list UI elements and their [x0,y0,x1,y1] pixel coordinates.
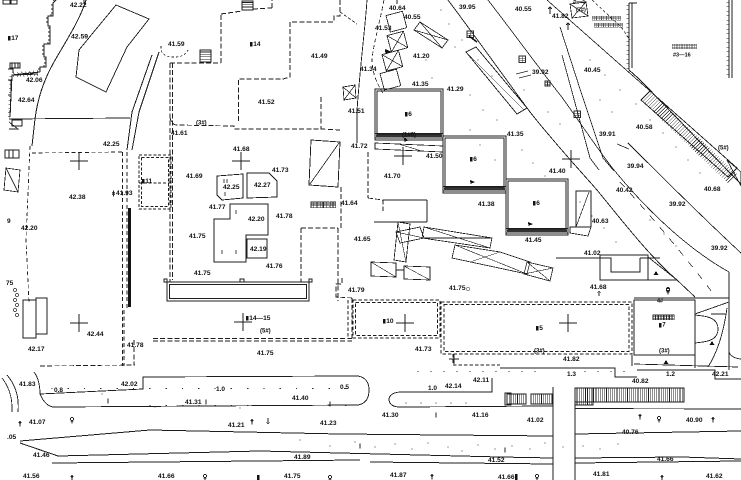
svg-text:11: 11 [145,178,152,185]
svg-text:40.55: 40.55 [515,6,532,13]
svg-text:41.75: 41.75 [194,270,211,277]
svg-text:41.56: 41.56 [23,473,40,480]
svg-text:41.07: 41.07 [29,419,46,426]
svg-text:41.23: 41.23 [320,420,337,427]
svg-text:1.0: 1.0 [428,385,437,392]
svg-text:41.59: 41.59 [168,41,185,48]
svg-text:40.76: 40.76 [622,429,639,436]
svg-text:6: 6 [473,156,477,163]
svg-text:41.61: 41.61 [171,130,188,137]
svg-text:0.5: 0.5 [340,384,349,391]
svg-text:41.02: 41.02 [527,417,544,424]
svg-text:42.21: 42.21 [712,371,729,378]
svg-text:6: 6 [408,111,412,118]
svg-text:41.78: 41.78 [276,213,293,220]
svg-text:41.65: 41.65 [354,236,371,243]
svg-text:17: 17 [11,35,19,42]
svg-text:42.25: 42.25 [223,184,240,191]
svg-text:41.49: 41.49 [311,53,328,60]
svg-text:42.44: 42.44 [87,331,104,338]
svg-text:42.19: 42.19 [250,246,267,253]
svg-text:41.76: 41.76 [266,263,283,270]
svg-text:41.69: 41.69 [186,173,203,180]
svg-text:4#: 4# [657,298,663,304]
svg-text:(3#): (3#) [534,349,545,355]
svg-text:41.46: 41.46 [33,452,50,459]
svg-text:42.20: 42.20 [248,216,265,223]
svg-text:41.75: 41.75 [284,473,301,480]
svg-text:42.20: 42.20 [21,225,38,232]
svg-text:41.34: 41.34 [360,66,377,73]
svg-text:41.75: 41.75 [449,285,466,292]
svg-text:.05: .05 [7,434,16,441]
svg-text:40.68: 40.68 [704,186,721,193]
svg-text:40.55: 40.55 [404,14,421,21]
svg-text:40.58: 40.58 [636,124,653,131]
svg-text:41.93: 41.93 [116,190,133,197]
svg-text:41.16: 41.16 [472,412,489,419]
svg-text:5: 5 [539,325,543,332]
svg-text:41.75: 41.75 [257,350,274,357]
svg-text:41.68: 41.68 [590,284,607,291]
svg-text:14: 14 [253,41,261,48]
svg-text:41.75: 41.75 [189,233,206,240]
svg-text:42.14: 42.14 [445,383,462,390]
svg-text:41.73: 41.73 [415,346,432,353]
svg-text:(5#): (5#) [718,146,729,152]
svg-text:41.77: 41.77 [209,204,226,211]
svg-text:39.91: 39.91 [599,131,616,138]
svg-text:41.52: 41.52 [258,99,275,106]
svg-text:42.02: 42.02 [121,381,138,388]
svg-text:6: 6 [536,200,540,207]
svg-text:42.38: 42.38 [69,194,86,201]
svg-text:41.38: 41.38 [478,201,495,208]
svg-text:41.82: 41.82 [552,13,569,20]
svg-text:41.70: 41.70 [384,173,401,180]
svg-text:41.02: 41.02 [584,250,601,257]
svg-text:42.06: 42.06 [26,77,43,84]
svg-text:10: 10 [386,318,394,325]
svg-text:41.79: 41.79 [348,287,365,294]
svg-text:41.35: 41.35 [507,131,524,138]
svg-text:40.82: 40.82 [632,378,649,385]
svg-text:#3—16: #3—16 [673,52,691,58]
svg-text:1.2: 1.2 [666,371,675,378]
svg-text:41.72: 41.72 [351,143,368,150]
svg-text:(1#6): (1#6) [402,133,416,139]
svg-text:41.66: 41.66 [498,474,515,480]
svg-text:14—15: 14—15 [249,315,271,322]
svg-text:41.29: 41.29 [447,86,464,93]
svg-text:41.45: 41.45 [525,237,542,244]
svg-text:41.83: 41.83 [19,381,36,388]
svg-text:41.62: 41.62 [706,473,723,480]
svg-text:(5#): (5#) [260,329,271,335]
svg-text:41.21: 41.21 [228,422,245,429]
svg-text:39.94: 39.94 [627,163,644,170]
svg-text:41.35: 41.35 [412,81,429,88]
svg-text:40.64: 40.64 [389,5,406,12]
svg-text:1.3: 1.3 [567,371,576,378]
svg-text:41.30: 41.30 [382,412,399,419]
svg-text:41.51: 41.51 [348,108,365,115]
svg-text:41.40: 41.40 [292,395,309,402]
svg-text:41.82: 41.82 [563,356,580,363]
svg-text:(3#): (3#) [196,121,207,127]
svg-text:40.90: 40.90 [686,417,703,424]
svg-text:9: 9 [7,218,11,225]
svg-text:42.64: 42.64 [18,97,35,104]
svg-text:41.81: 41.81 [593,471,610,478]
svg-text:39.92: 39.92 [669,201,686,208]
svg-text:40.63: 40.63 [592,218,609,225]
svg-text:42.59: 42.59 [71,33,88,40]
svg-text:(7#): (7#) [576,7,586,13]
svg-text:39.92: 39.92 [532,69,549,76]
svg-text:0.8: 0.8 [54,387,63,394]
svg-text:41.64: 41.64 [341,200,358,207]
svg-text:41.31: 41.31 [185,399,202,406]
svg-text:41.20: 41.20 [413,53,430,60]
svg-text:42.27: 42.27 [254,182,271,189]
svg-text:42.11: 42.11 [473,377,489,384]
svg-text:41.40: 41.40 [549,168,566,175]
svg-text:41.66: 41.66 [158,473,175,480]
svg-text:41.50: 41.50 [426,153,443,160]
svg-text:75: 75 [6,280,14,287]
svg-text:39.95: 39.95 [459,4,476,11]
svg-text:39.92: 39.92 [711,245,728,252]
svg-text:41.73: 41.73 [272,167,289,174]
svg-text:(3#): (3#) [659,349,670,355]
svg-text:40.45: 40.45 [584,67,601,74]
svg-text:#—5: #—5 [573,0,586,6]
svg-text:41.78: 41.78 [127,342,144,349]
svg-text:41.87: 41.87 [390,472,407,479]
svg-text:1.0: 1.0 [216,386,225,393]
svg-text:40.42: 40.42 [616,187,633,194]
svg-text:42.17: 42.17 [28,346,45,353]
svg-text:42.25: 42.25 [103,141,120,148]
